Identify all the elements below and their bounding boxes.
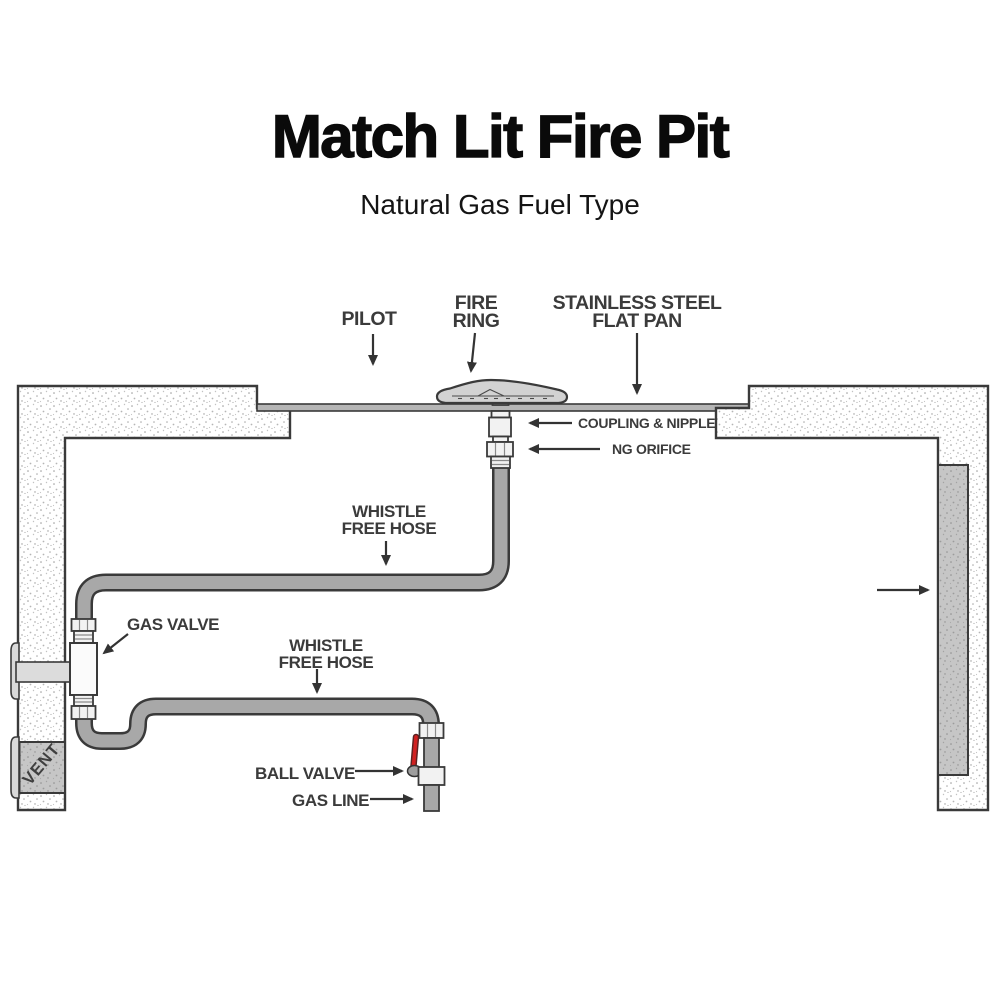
ball-valve-handle bbox=[414, 737, 417, 766]
gas-valve-body bbox=[70, 643, 97, 695]
valve-lower-collar bbox=[74, 695, 93, 706]
coupling-nipple-label: COUPLING & NIPPLE bbox=[578, 415, 715, 431]
page-subtitle: Natural Gas Fuel Type bbox=[360, 189, 640, 220]
flat-pan-label-line2: FLAT PAN bbox=[592, 310, 682, 332]
gas-line-pipe bbox=[424, 785, 439, 811]
pan-connector-rib bbox=[492, 411, 510, 418]
whistle-hose-upper-label-line2: FREE HOSE bbox=[342, 519, 437, 538]
orifice-lower-rib bbox=[491, 457, 510, 469]
diagram-canvas: Match Lit Fire Pit Natural Gas Fuel Type… bbox=[0, 0, 1000, 1000]
fire-ring bbox=[437, 380, 567, 403]
coupling-nipple-body bbox=[489, 418, 511, 437]
whistle-free-hose-lower-pipe bbox=[84, 707, 431, 742]
valve-riser-pipe bbox=[424, 738, 439, 768]
valve-lower-hex-fitting bbox=[72, 706, 96, 719]
ball-valve-hex-fitting bbox=[420, 723, 444, 738]
gas-valve-arrow bbox=[104, 634, 128, 653]
whistle-free-hose-upper-pipe bbox=[84, 466, 501, 620]
valve-upper-collar bbox=[74, 631, 93, 643]
pilot-label: PILOT bbox=[342, 308, 398, 330]
whistle-hose-lower-label-line2: FREE HOSE bbox=[279, 653, 374, 672]
vent: VENT bbox=[19, 740, 65, 793]
vent-exterior-tab bbox=[11, 737, 19, 798]
page-title: Match Lit Fire Pit bbox=[272, 103, 730, 170]
ng-orifice-label: NG ORIFICE bbox=[612, 441, 691, 457]
gas-line-label: GAS LINE bbox=[292, 791, 369, 810]
ball-valve-assembly bbox=[408, 723, 445, 811]
valve-upper-hex-fitting bbox=[72, 619, 96, 631]
ng-orifice-hex bbox=[487, 442, 513, 457]
coupling-and-orifice-assembly bbox=[487, 411, 513, 468]
ball-valve-body bbox=[419, 767, 445, 785]
fire-ring-label-line2: RING bbox=[453, 310, 500, 332]
gas-valve-label: GAS VALVE bbox=[127, 615, 219, 634]
right-wall-inner-gray-panel bbox=[938, 465, 968, 775]
fire-pit-diagram-page: Match Lit Fire Pit Natural Gas Fuel Type… bbox=[0, 0, 1000, 1000]
ball-valve-label: BALL VALVE bbox=[255, 764, 355, 783]
fire-ring-arrow bbox=[471, 333, 475, 371]
valve-key-stem bbox=[16, 662, 72, 682]
